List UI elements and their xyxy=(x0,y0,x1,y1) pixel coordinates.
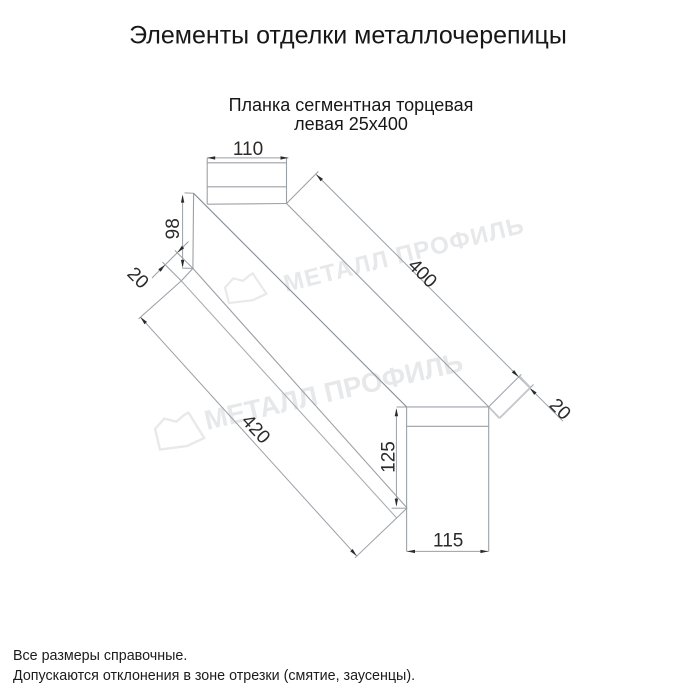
svg-text:Допускаются отклонения в зоне: Допускаются отклонения в зоне отрезки (с… xyxy=(13,668,415,684)
svg-text:110: 110 xyxy=(233,139,263,160)
svg-text:Все размеры справочные.: Все размеры справочные. xyxy=(13,648,187,664)
svg-text:20: 20 xyxy=(545,395,575,425)
svg-text:Планка сегментная торцевая: Планка сегментная торцевая xyxy=(229,95,474,115)
svg-text:98: 98 xyxy=(163,218,184,239)
svg-text:МЕТАЛЛ ПРОФИЛЬ: МЕТАЛЛ ПРОФИЛЬ xyxy=(281,212,528,298)
svg-text:115: 115 xyxy=(433,531,463,552)
svg-text:20: 20 xyxy=(123,263,153,293)
svg-text:125: 125 xyxy=(379,441,400,473)
svg-text:левая 25х400: левая 25х400 xyxy=(294,114,408,134)
svg-text:Элементы отделки металлочерепи: Элементы отделки металлочерепицы xyxy=(129,22,567,50)
